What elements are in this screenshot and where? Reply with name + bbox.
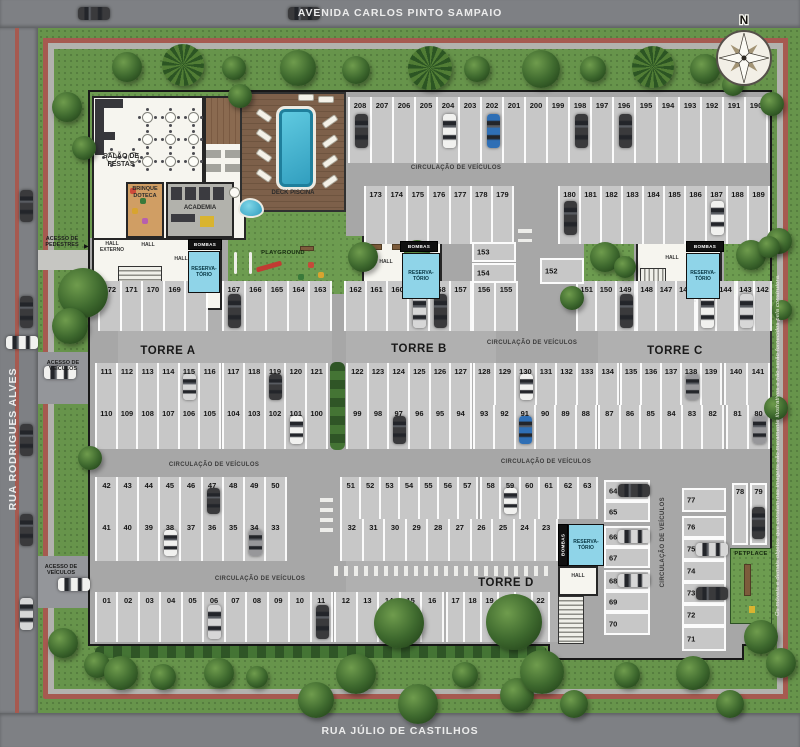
parking-stall-150: 150 bbox=[597, 281, 616, 331]
parking-stall-173: 173 bbox=[366, 186, 387, 244]
stall-number: 131 bbox=[537, 367, 556, 376]
parking-stall-43: 43 bbox=[118, 477, 139, 519]
parking-stall-61: 61 bbox=[540, 477, 559, 519]
parking-stall-97: 97 bbox=[389, 405, 410, 449]
stall-number: 07 bbox=[226, 596, 245, 605]
stall-number: 44 bbox=[139, 481, 158, 490]
parking-stall-49: 49 bbox=[245, 477, 266, 519]
parking-stall-91: 91 bbox=[516, 405, 536, 449]
jogging-path-top bbox=[44, 38, 788, 43]
tree bbox=[716, 690, 744, 718]
parking-stall-07: 07 bbox=[226, 592, 247, 642]
parking-stall-197: 197 bbox=[592, 97, 614, 163]
street-name-bottom: RUA JÚLIO DE CASTILHOS bbox=[0, 725, 800, 737]
parking-stall-83: 83 bbox=[683, 405, 704, 449]
stall-number: 187 bbox=[707, 190, 726, 199]
parking-stall-58: 58 bbox=[482, 477, 501, 519]
car bbox=[207, 488, 220, 514]
tree bbox=[614, 256, 636, 278]
stall-number: 42 bbox=[97, 481, 116, 490]
parking-stall-136: 136 bbox=[642, 363, 662, 405]
tree bbox=[52, 308, 88, 344]
parking-row-r2a: 173174175176177178179 bbox=[364, 186, 512, 244]
parking-row-r8a: 0102030405060708091011 bbox=[95, 592, 331, 642]
parking-stall-93: 93 bbox=[475, 405, 495, 449]
parking-row-r5d: 939291908988 bbox=[473, 405, 595, 449]
restroom-fixture bbox=[225, 164, 240, 172]
parking-stall-56: 56 bbox=[439, 477, 458, 519]
stall-number: 198 bbox=[570, 101, 590, 110]
stall-number: 135 bbox=[622, 367, 640, 376]
car bbox=[618, 574, 650, 587]
parking-stall-178: 178 bbox=[472, 186, 493, 244]
stall-number: 155 bbox=[496, 285, 516, 294]
stall-number: 84 bbox=[662, 409, 681, 418]
stall-number: 102 bbox=[266, 409, 285, 418]
disclaimer-text: Os móveis e demais objetos que constam n… bbox=[775, 165, 787, 725]
pump-room: BOMBAS bbox=[686, 241, 724, 252]
stall-number: 175 bbox=[408, 190, 427, 199]
sidewalk-top bbox=[44, 43, 788, 49]
parking-stall-130: 130 bbox=[516, 363, 537, 405]
car bbox=[752, 507, 765, 539]
parking-stall-135: 135 bbox=[622, 363, 642, 405]
stall-number: 92 bbox=[495, 409, 513, 418]
stall-number: 26 bbox=[472, 523, 492, 532]
parking-stall-35: 35 bbox=[224, 519, 245, 561]
parking-row-r7b: 32313029282726252423 bbox=[340, 519, 556, 561]
stall-number: 63 bbox=[579, 481, 596, 490]
tree bbox=[112, 52, 142, 82]
stall-number: 153 bbox=[477, 248, 490, 257]
parking-stall-42: 42 bbox=[97, 477, 118, 519]
parking-stall-109: 109 bbox=[118, 405, 139, 449]
stall-number: 194 bbox=[658, 101, 678, 110]
stall-number: 57 bbox=[459, 481, 476, 490]
stall-number: 58 bbox=[482, 481, 499, 490]
stall-number: 30 bbox=[385, 523, 405, 532]
street-name-left: RUA RODRIGUES ALVES bbox=[7, 289, 19, 589]
parking-stall-164: 164 bbox=[289, 281, 311, 331]
parking-stall-120: 120 bbox=[286, 363, 307, 405]
stall-number: 122 bbox=[348, 367, 367, 376]
pump-room: BOMBAS bbox=[558, 524, 568, 566]
parking-stall-176: 176 bbox=[429, 186, 450, 244]
parking-stall-32: 32 bbox=[342, 519, 364, 561]
parking-stall-105: 105 bbox=[200, 405, 221, 449]
water-reservoir: RESERVA-TÓRIO bbox=[402, 253, 440, 299]
stall-number: 106 bbox=[180, 409, 199, 418]
stall-number: 77 bbox=[687, 496, 695, 505]
sun-lounger bbox=[318, 96, 334, 103]
parking-stall-03: 03 bbox=[140, 592, 161, 642]
stall-number: 205 bbox=[416, 101, 436, 110]
parking-row-r5e: 878685848382 bbox=[598, 405, 722, 449]
parking-stall-95: 95 bbox=[431, 405, 452, 449]
car bbox=[564, 201, 577, 235]
tree bbox=[342, 56, 370, 84]
parking-stall-156: 156 bbox=[474, 281, 496, 331]
parking-stall-38: 38 bbox=[160, 519, 181, 561]
parking-stall-72: 72 bbox=[682, 604, 726, 626]
car bbox=[393, 416, 406, 444]
parking-stall-132: 132 bbox=[557, 363, 578, 405]
label-deck_piscina: DECK PISCINA bbox=[271, 190, 315, 197]
parking-stall-119: 119 bbox=[266, 363, 287, 405]
tree bbox=[150, 664, 176, 690]
parking-stall-85: 85 bbox=[641, 405, 662, 449]
stall-number: 16 bbox=[422, 596, 442, 605]
label-b: TORRE B bbox=[391, 343, 447, 355]
stall-number: 86 bbox=[621, 409, 640, 418]
tree bbox=[48, 628, 78, 658]
parking-stall-87: 87 bbox=[600, 405, 621, 449]
parking-stall-06: 06 bbox=[204, 592, 225, 642]
car bbox=[20, 296, 33, 328]
parking-stall-128: 128 bbox=[475, 363, 496, 405]
car bbox=[20, 598, 33, 630]
parking-stall-100: 100 bbox=[307, 405, 328, 449]
stall-number: 197 bbox=[592, 101, 612, 110]
tree bbox=[760, 92, 784, 116]
parking-stall-177: 177 bbox=[451, 186, 472, 244]
parking-stall-79: 79 bbox=[750, 483, 767, 545]
parking-stall-51: 51 bbox=[342, 477, 361, 519]
stall-number: 67 bbox=[609, 553, 617, 562]
parking-stall-54: 54 bbox=[400, 477, 419, 519]
parking-stall-88: 88 bbox=[577, 405, 597, 449]
parking-stall-86: 86 bbox=[621, 405, 642, 449]
parking-stall-180: 180 bbox=[560, 186, 581, 244]
parking-stall-81: 81 bbox=[728, 405, 749, 449]
parking-stall-27: 27 bbox=[450, 519, 472, 561]
stall-number: 105 bbox=[200, 409, 219, 418]
stall-number: 141 bbox=[748, 367, 768, 376]
stall-number: 182 bbox=[602, 190, 621, 199]
parking-stall-184: 184 bbox=[644, 186, 665, 244]
parking-stall-52: 52 bbox=[361, 477, 380, 519]
car bbox=[487, 114, 500, 148]
gym-equipment bbox=[171, 214, 195, 222]
car bbox=[619, 114, 632, 148]
car bbox=[504, 488, 517, 514]
parking-stall-74: 74 bbox=[682, 560, 726, 582]
stall-number: 28 bbox=[428, 523, 448, 532]
road-bottom: RUA JÚLIO DE CASTILHOS bbox=[0, 713, 800, 747]
parking-stall-48: 48 bbox=[224, 477, 245, 519]
stall-number: 79 bbox=[752, 487, 765, 496]
stall-number: 33 bbox=[266, 523, 285, 532]
parking-row-r4c: 122123124125126127 bbox=[346, 363, 470, 405]
stall-number: 69 bbox=[609, 597, 617, 606]
stall-number: 156 bbox=[474, 285, 494, 294]
parking-stall-92: 92 bbox=[495, 405, 515, 449]
stall-number: 118 bbox=[245, 367, 264, 376]
label-acesso_veiculos: ACESSO DE VEÍCULOS bbox=[40, 360, 86, 373]
car bbox=[686, 374, 699, 400]
parking-stall-84: 84 bbox=[662, 405, 683, 449]
stall-number: 50 bbox=[266, 481, 285, 490]
label-d: TORRE D bbox=[478, 577, 534, 589]
stall-number: 64 bbox=[609, 486, 617, 495]
stall-number: 37 bbox=[181, 523, 200, 532]
parking-stall-171: 171 bbox=[122, 281, 144, 331]
parking-stall-12: 12 bbox=[336, 592, 358, 642]
stall-number: 123 bbox=[369, 367, 388, 376]
stall-number: 04 bbox=[161, 596, 180, 605]
parking-stall-90: 90 bbox=[536, 405, 556, 449]
parking-stall-76: 76 bbox=[682, 516, 726, 538]
stall-number: 169 bbox=[165, 285, 185, 294]
parking-row-r4a: 111112113114115116 bbox=[95, 363, 219, 405]
stall-number: 204 bbox=[438, 101, 458, 110]
parking-stall-117: 117 bbox=[224, 363, 245, 405]
parking-stall-165: 165 bbox=[267, 281, 289, 331]
parking-stall-142: 142 bbox=[755, 281, 772, 331]
stall-number: 40 bbox=[118, 523, 137, 532]
party-table bbox=[188, 112, 199, 123]
parking-stall-29: 29 bbox=[407, 519, 429, 561]
parking-stall-44: 44 bbox=[139, 477, 160, 519]
parking-stall-30: 30 bbox=[385, 519, 407, 561]
stall-number: 62 bbox=[559, 481, 576, 490]
pump-room: BOMBAS bbox=[188, 239, 222, 250]
parking-row-r2b: 180181182183184185186187188189 bbox=[558, 186, 768, 244]
stall-number: 196 bbox=[614, 101, 634, 110]
parking-stall-98: 98 bbox=[369, 405, 390, 449]
stall-number: 13 bbox=[358, 596, 378, 605]
stall-number: 114 bbox=[159, 367, 178, 376]
parking-stall-140: 140 bbox=[726, 363, 748, 405]
crosswalk bbox=[518, 229, 532, 242]
parking-stall-124: 124 bbox=[389, 363, 410, 405]
parking-stall-157: 157 bbox=[451, 281, 472, 331]
parking-stall-138: 138 bbox=[682, 363, 702, 405]
hedge bbox=[95, 646, 547, 658]
parking-stall-40: 40 bbox=[118, 519, 139, 561]
stall-number: 147 bbox=[657, 285, 674, 294]
stall-number: 117 bbox=[224, 367, 243, 376]
stall-number: 06 bbox=[204, 596, 223, 605]
stall-number: 157 bbox=[451, 285, 470, 294]
stall-number: 107 bbox=[159, 409, 178, 418]
parking-stall-125: 125 bbox=[410, 363, 431, 405]
parking-stall-57: 57 bbox=[459, 477, 478, 519]
car bbox=[711, 201, 724, 235]
tree bbox=[486, 594, 542, 650]
pedestrian-access-path bbox=[38, 250, 90, 270]
car bbox=[520, 374, 533, 400]
parking-stall-60: 60 bbox=[521, 477, 540, 519]
stall-number: 02 bbox=[118, 596, 137, 605]
stall-number: 25 bbox=[493, 523, 513, 532]
parking-row-r4f: 140141 bbox=[724, 363, 768, 405]
stall-number: 99 bbox=[348, 409, 367, 418]
parking-stall-203: 203 bbox=[460, 97, 482, 163]
kids-pool bbox=[238, 198, 264, 218]
party-table bbox=[165, 134, 176, 145]
compass-rose: N bbox=[712, 10, 776, 92]
stall-number: 09 bbox=[269, 596, 288, 605]
parking-stall-194: 194 bbox=[658, 97, 680, 163]
stall-number: 18 bbox=[465, 596, 480, 605]
stall-number: 35 bbox=[224, 523, 243, 532]
car bbox=[290, 416, 303, 444]
parking-stall-153: 153 bbox=[472, 242, 516, 262]
car bbox=[208, 605, 221, 639]
stall-number: 94 bbox=[451, 409, 470, 418]
car bbox=[443, 114, 456, 148]
car bbox=[355, 114, 368, 148]
stall-number: 133 bbox=[578, 367, 597, 376]
parking-stall-101: 101 bbox=[286, 405, 307, 449]
parking-row-r5f: 8180 bbox=[726, 405, 768, 449]
car bbox=[740, 294, 753, 328]
tree bbox=[246, 666, 268, 688]
parking-stall-46: 46 bbox=[181, 477, 202, 519]
stall-number: 55 bbox=[420, 481, 437, 490]
stall-number: 82 bbox=[703, 409, 722, 418]
stall-number: 65 bbox=[609, 507, 617, 516]
stall-number: 186 bbox=[686, 190, 705, 199]
parking-stall-169: 169 bbox=[165, 281, 187, 331]
parking-stall-201: 201 bbox=[504, 97, 526, 163]
tree bbox=[452, 662, 478, 688]
stall-number: 23 bbox=[536, 523, 556, 532]
stall-number: 121 bbox=[307, 367, 326, 376]
car bbox=[20, 514, 33, 546]
parking-stall-208: 208 bbox=[350, 97, 372, 163]
parking-stall-191: 191 bbox=[724, 97, 746, 163]
parking-row-r4e: 135136137138139 bbox=[620, 363, 720, 405]
stall-number: 96 bbox=[410, 409, 429, 418]
car bbox=[701, 294, 714, 328]
stall-number: 181 bbox=[581, 190, 600, 199]
parking-stall-37: 37 bbox=[181, 519, 202, 561]
parking-stall-16: 16 bbox=[422, 592, 444, 642]
tree bbox=[336, 654, 376, 694]
tree bbox=[78, 446, 102, 470]
parking-stall-18: 18 bbox=[465, 592, 482, 642]
parking-row-r5b: 104103102101100 bbox=[222, 405, 326, 449]
palm-tree bbox=[408, 46, 452, 90]
site-plan: AVENIDA CARLOS PINTO SAMPAIO RUA RODRIGU… bbox=[0, 0, 800, 747]
parking-stall-28: 28 bbox=[428, 519, 450, 561]
stall-number: 32 bbox=[342, 523, 362, 532]
party-table bbox=[142, 134, 153, 145]
label-hall: HALL bbox=[370, 260, 402, 266]
car bbox=[183, 374, 196, 400]
label-acesso_pedestres: ACESSO DE PEDESTRES bbox=[39, 236, 85, 249]
stall-number: 142 bbox=[755, 285, 770, 294]
stall-number: 75 bbox=[687, 545, 695, 554]
parking-stall-139: 139 bbox=[702, 363, 722, 405]
tower-d-hall-building bbox=[558, 566, 598, 596]
stall-number: 174 bbox=[387, 190, 406, 199]
label-circulacao: CIRCULAÇÃO DE VEÍCULOS bbox=[501, 459, 591, 465]
restroom-fixture bbox=[206, 150, 221, 158]
stall-number: 120 bbox=[286, 367, 305, 376]
stall-number: 103 bbox=[245, 409, 264, 418]
parking-row-r5a: 110109108107106105 bbox=[95, 405, 219, 449]
pedestrian-access-arrow: ▶ bbox=[84, 243, 89, 250]
parking-stall-96: 96 bbox=[410, 405, 431, 449]
parking-stall-75: 75 bbox=[682, 538, 726, 560]
tree bbox=[52, 92, 82, 122]
parking-stall-39: 39 bbox=[139, 519, 160, 561]
parking-row-r4d: 128129130131132133134 bbox=[473, 363, 617, 405]
stall-number: 39 bbox=[139, 523, 158, 532]
label-hall_externo: HALL EXTERNO bbox=[96, 242, 128, 253]
label-c: TORRE C bbox=[647, 345, 703, 357]
party-table bbox=[165, 156, 176, 167]
stall-number: 124 bbox=[389, 367, 408, 376]
parking-stall-04: 04 bbox=[161, 592, 182, 642]
parking-stall-77: 77 bbox=[682, 488, 726, 512]
parking-stall-148: 148 bbox=[638, 281, 657, 331]
parking-stall-202: 202 bbox=[482, 97, 504, 163]
stall-number: 70 bbox=[609, 619, 617, 628]
parking-stall-45: 45 bbox=[160, 477, 181, 519]
gym-equipment bbox=[200, 216, 214, 227]
stall-number: 129 bbox=[496, 367, 515, 376]
parking-stall-68: 68 bbox=[604, 570, 650, 591]
stall-number: 150 bbox=[597, 285, 614, 294]
parking-stall-01: 01 bbox=[97, 592, 118, 642]
restroom-fixture bbox=[206, 164, 221, 172]
stall-number: 177 bbox=[451, 190, 470, 199]
stall-number: 180 bbox=[560, 190, 579, 199]
bench bbox=[744, 564, 751, 596]
gym-equipment bbox=[213, 187, 224, 200]
water-reservoir: RESERVA-TÓRIO bbox=[568, 524, 604, 566]
pool-side-table bbox=[229, 187, 240, 198]
car bbox=[20, 424, 33, 456]
stall-number: 178 bbox=[472, 190, 491, 199]
car bbox=[618, 530, 650, 543]
stall-number: 164 bbox=[289, 285, 309, 294]
label-hall: HALL bbox=[165, 257, 197, 263]
stall-number: 127 bbox=[451, 367, 470, 376]
label-hall: HALL bbox=[656, 256, 688, 262]
crosswalk bbox=[334, 566, 548, 576]
tree bbox=[280, 50, 316, 86]
car bbox=[434, 294, 447, 328]
stall-number: 45 bbox=[160, 481, 179, 490]
parking-stall-149: 149 bbox=[617, 281, 636, 331]
parking-stall-199: 199 bbox=[548, 97, 570, 163]
tree bbox=[228, 84, 252, 108]
parking-stall-198: 198 bbox=[570, 97, 592, 163]
parking-stall-102: 102 bbox=[266, 405, 287, 449]
stall-number: 134 bbox=[598, 367, 617, 376]
stall-number: 163 bbox=[310, 285, 330, 294]
label-hall: HALL bbox=[132, 243, 164, 249]
parking-stall-23: 23 bbox=[536, 519, 558, 561]
parking-stall-106: 106 bbox=[180, 405, 201, 449]
car bbox=[575, 114, 588, 148]
parking-stall-143: 143 bbox=[738, 281, 755, 331]
stall-number: 116 bbox=[200, 367, 219, 376]
parking-stall-33: 33 bbox=[266, 519, 287, 561]
stall-number: 89 bbox=[556, 409, 574, 418]
stall-number: 27 bbox=[450, 523, 470, 532]
tree bbox=[522, 50, 560, 88]
stall-number: 162 bbox=[346, 285, 365, 294]
parking-row-r6b: 51525354555657 bbox=[340, 477, 476, 519]
play-toy bbox=[142, 218, 148, 224]
stall-number: 173 bbox=[366, 190, 385, 199]
